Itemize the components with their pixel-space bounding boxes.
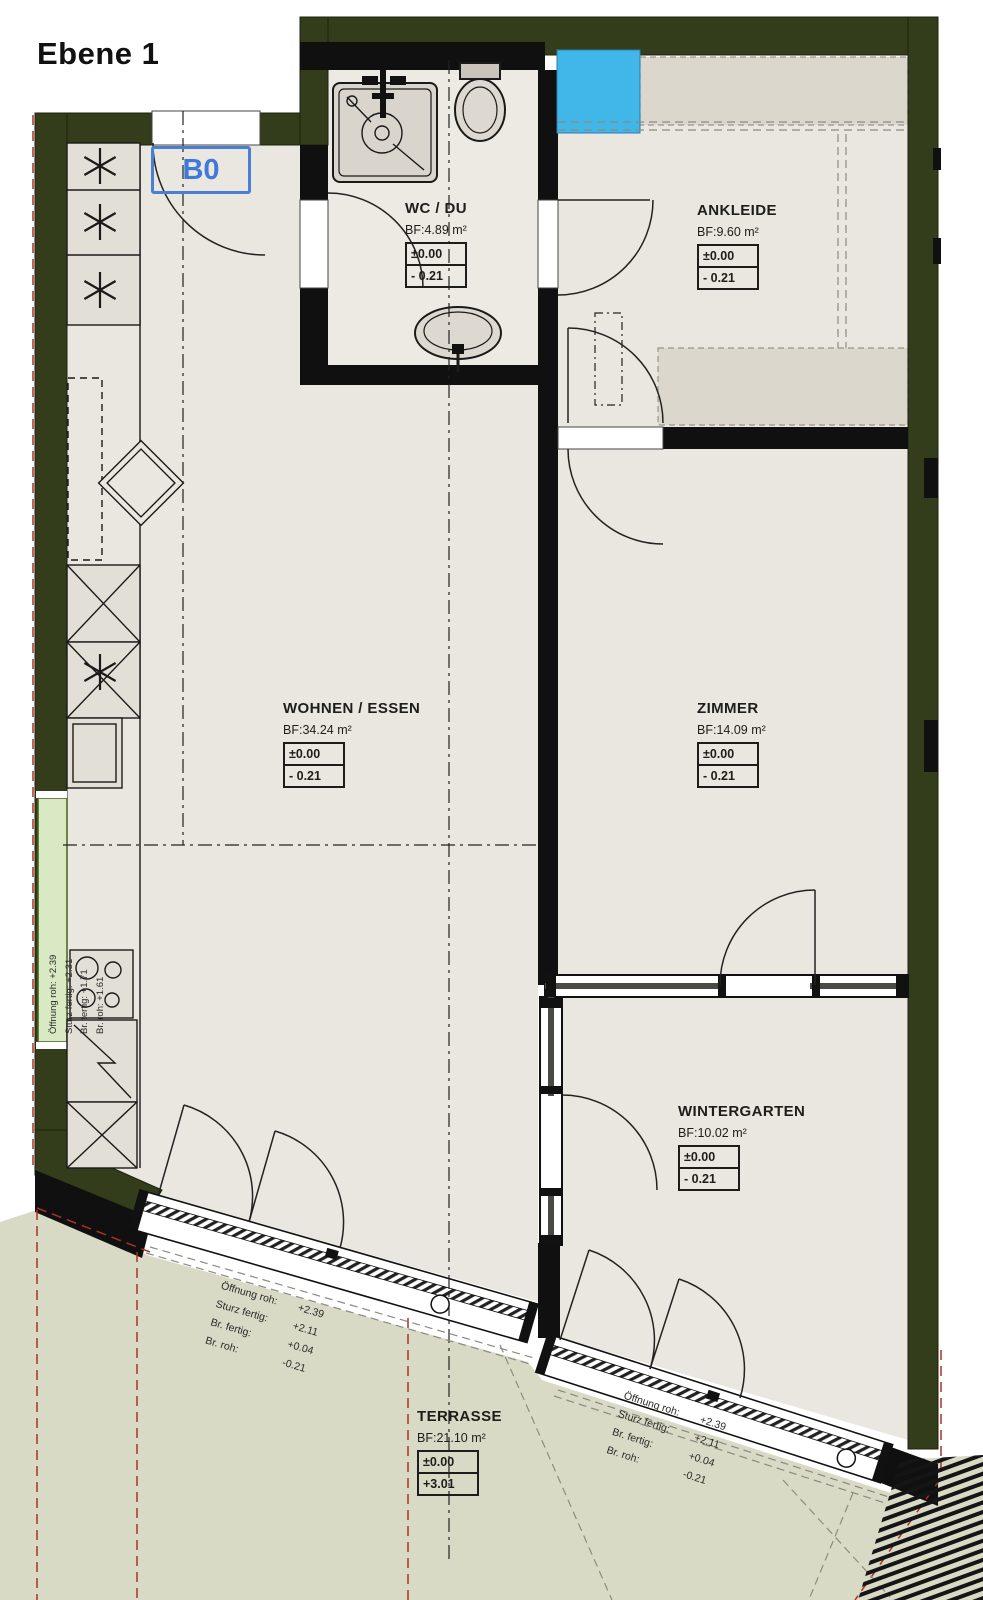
room-name: ZIMMER: [697, 700, 766, 717]
floor-plan: Ebene 1 B0 WC / DU BF:4.89 m² ±0.00 - 0.…: [0, 0, 983, 1600]
room-area: BF:10.02 m²: [678, 1126, 805, 1140]
room-name: WOHNEN / ESSEN: [283, 700, 420, 717]
page-title: Ebene 1: [37, 36, 159, 72]
room-area: BF:21.10 m²: [417, 1431, 502, 1445]
level-box: ±0.00 - 0.21: [405, 242, 467, 288]
room-area: BF:9.60 m²: [697, 225, 777, 239]
skylight-blue: [557, 50, 640, 133]
room-area: BF:34.24 m²: [283, 723, 420, 737]
level-box: ±0.00 - 0.21: [283, 742, 345, 788]
level-box: ±0.00 - 0.21: [697, 244, 759, 290]
room-name: WINTERGARTEN: [678, 1103, 805, 1120]
room-name: ANKLEIDE: [697, 202, 777, 219]
level-box: ±0.00 - 0.21: [678, 1145, 740, 1191]
floor-fills: [0, 57, 983, 1600]
door-tag-b0: B0: [151, 146, 251, 194]
room-name: WC / DU: [405, 200, 467, 217]
entrance-opening: [152, 111, 260, 145]
room-label-zimmer: ZIMMER BF:14.09 m² ±0.00 - 0.21: [697, 700, 766, 788]
room-area: BF:4.89 m²: [405, 223, 467, 237]
room-label-ankleide: ANKLEIDE BF:9.60 m² ±0.00 - 0.21: [697, 202, 777, 290]
room-label-wohnen: WOHNEN / ESSEN BF:34.24 m² ±0.00 - 0.21: [283, 700, 420, 788]
room-label-wintergarten: WINTERGARTEN BF:10.02 m² ±0.00 - 0.21: [678, 1103, 805, 1191]
room-label-terrasse: TERRASSE BF:21.10 m² ±0.00 +3.01: [417, 1408, 502, 1496]
room-name: TERRASSE: [417, 1408, 502, 1425]
level-box: ±0.00 +3.01: [417, 1450, 479, 1496]
room-label-wc: WC / DU BF:4.89 m² ±0.00 - 0.21: [405, 200, 467, 288]
wall-connector: [300, 17, 328, 145]
room-area: BF:14.09 m²: [697, 723, 766, 737]
level-box: ±0.00 - 0.21: [697, 742, 759, 788]
kitchen-window-annotation: Öffnung roh: +2.39 Sturz fertig: +2.31 B…: [46, 824, 108, 1034]
toilet: [455, 63, 505, 141]
floor-plan-drawing: [0, 0, 983, 1600]
